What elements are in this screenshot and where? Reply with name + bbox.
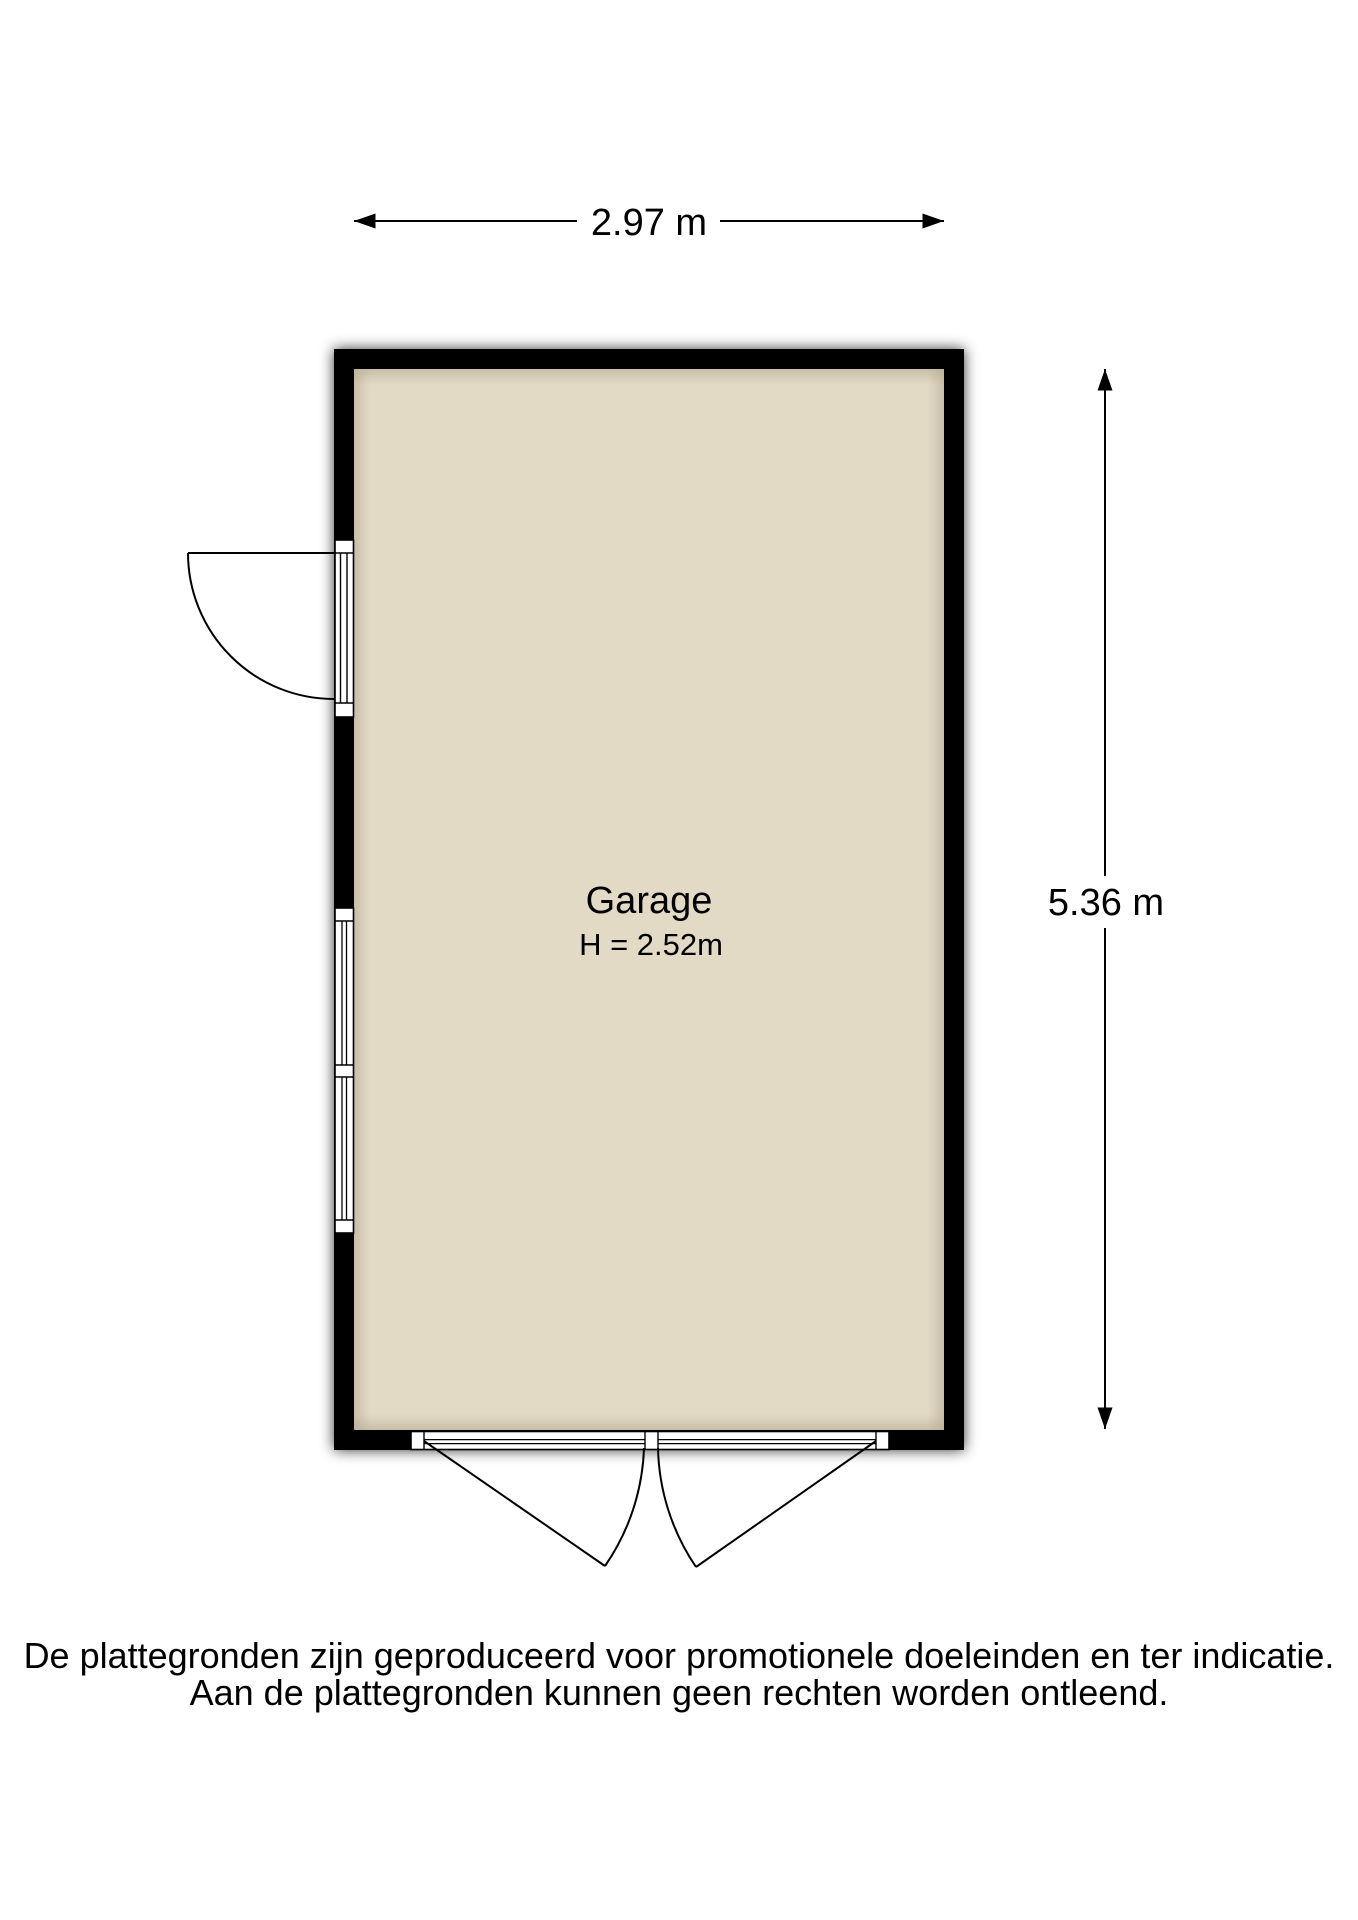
- svg-text:Aan de plattegronden kunnen ge: Aan de plattegronden kunnen geen rechten…: [190, 1672, 1169, 1713]
- svg-text:Garage: Garage: [586, 880, 713, 922]
- svg-text:H = 2.52m: H = 2.52m: [579, 927, 723, 962]
- svg-text:2.97 m: 2.97 m: [591, 202, 707, 244]
- svg-text:De plattegronden zijn geproduc: De plattegronden zijn geproduceerd voor …: [24, 1635, 1335, 1676]
- svg-text:5.36 m: 5.36 m: [1048, 882, 1164, 924]
